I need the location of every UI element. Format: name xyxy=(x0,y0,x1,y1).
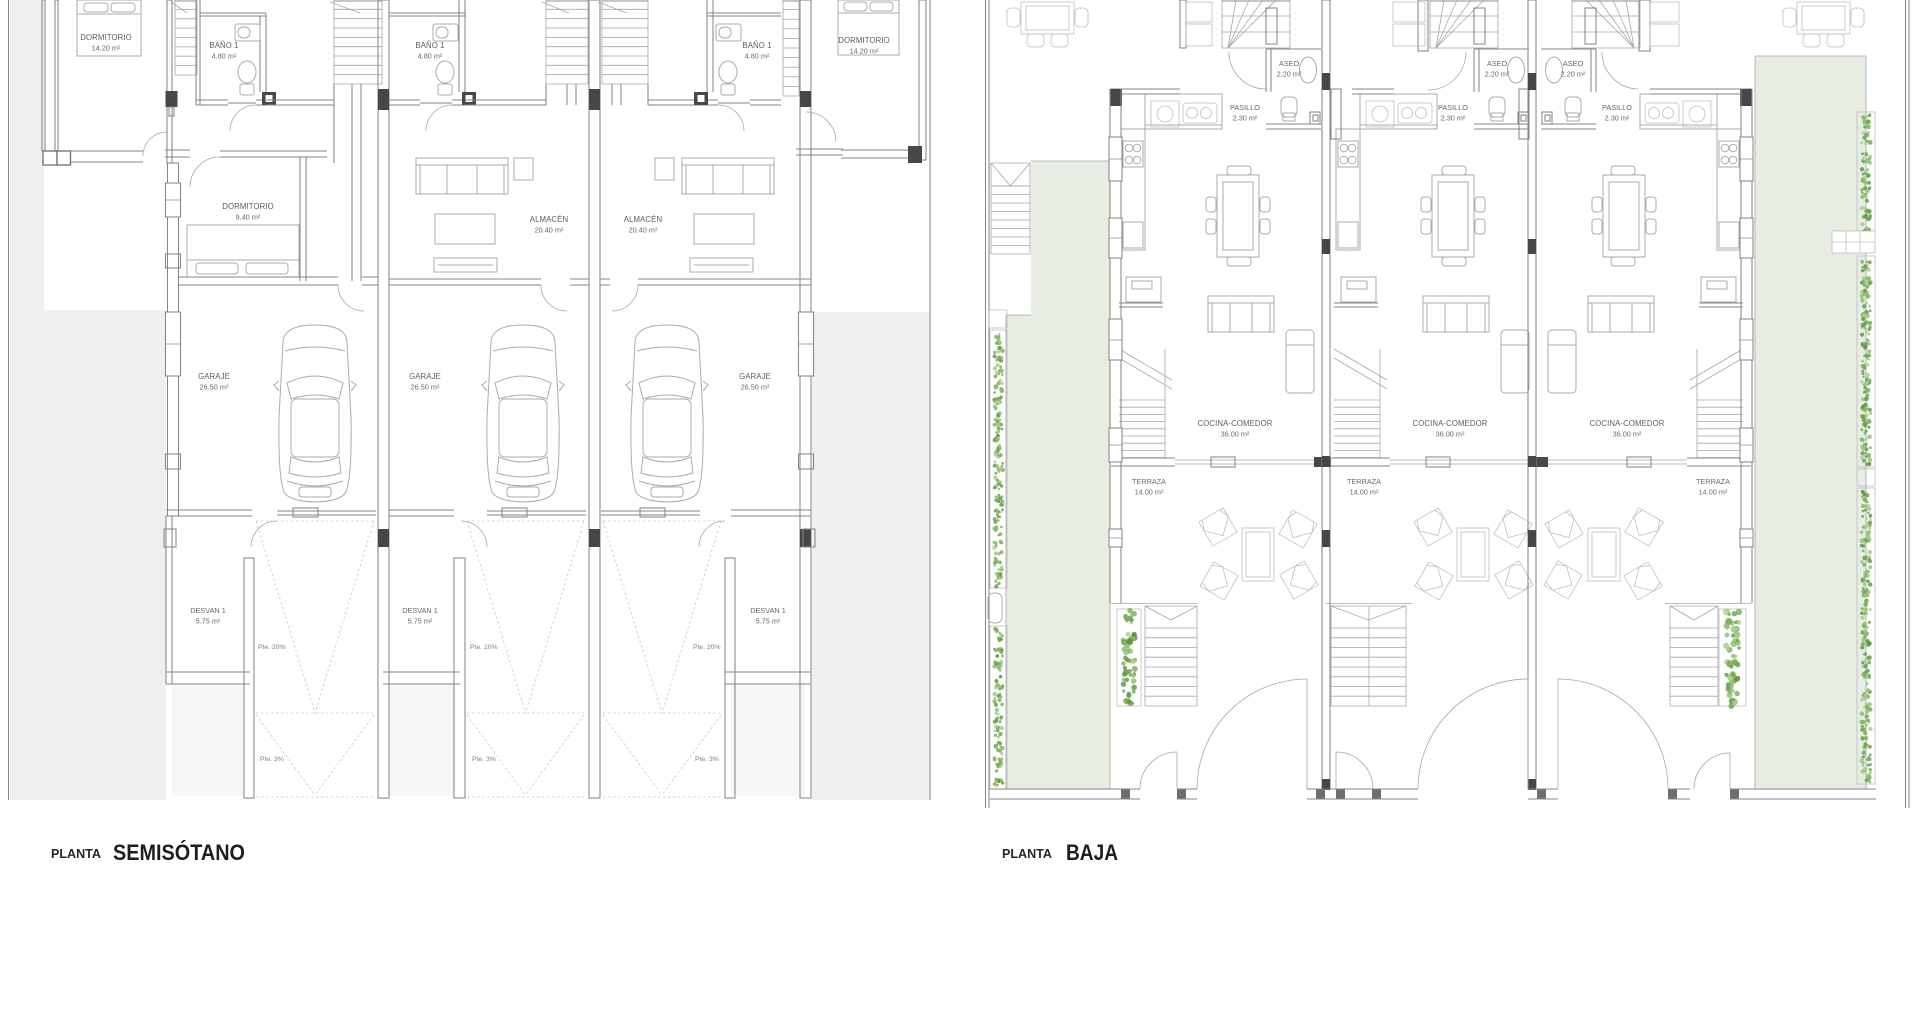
svg-text:GARAJE: GARAJE xyxy=(198,372,230,381)
svg-text:PASILLO: PASILLO xyxy=(1602,103,1632,112)
svg-text:2.30 m²: 2.30 m² xyxy=(1605,114,1630,123)
svg-text:TERRAZA: TERRAZA xyxy=(1696,477,1730,486)
svg-text:5.75 m²: 5.75 m² xyxy=(196,617,221,626)
svg-text:26.50 m²: 26.50 m² xyxy=(200,383,229,392)
svg-text:DESVAN 1: DESVAN 1 xyxy=(750,606,786,615)
svg-text:2.20 m²: 2.20 m² xyxy=(1561,70,1586,79)
svg-text:DORMITORIO: DORMITORIO xyxy=(80,33,132,42)
svg-text:SEMISÓTANO: SEMISÓTANO xyxy=(113,840,245,865)
svg-text:Pte. 3%: Pte. 3% xyxy=(260,756,284,763)
svg-text:5.75 m²: 5.75 m² xyxy=(408,617,433,626)
svg-text:COCINA-COMEDOR: COCINA-COMEDOR xyxy=(1197,419,1272,428)
svg-text:14.00 m²: 14.00 m² xyxy=(1350,488,1379,497)
svg-text:14.00 m²: 14.00 m² xyxy=(1699,488,1728,497)
svg-text:ASEO: ASEO xyxy=(1487,59,1508,68)
svg-text:TERRAZA: TERRAZA xyxy=(1347,477,1381,486)
svg-text:2.20 m²: 2.20 m² xyxy=(1277,70,1302,79)
svg-text:Pte. 20%: Pte. 20% xyxy=(693,644,721,651)
svg-text:36.00 m²: 36.00 m² xyxy=(1613,430,1642,439)
svg-text:PLANTA: PLANTA xyxy=(51,847,101,861)
svg-text:DORMITORIO: DORMITORIO xyxy=(222,202,274,211)
svg-text:DESVAN 1: DESVAN 1 xyxy=(190,606,226,615)
svg-text:2.30 m²: 2.30 m² xyxy=(1441,114,1466,123)
svg-text:BAÑO 1: BAÑO 1 xyxy=(209,41,238,50)
svg-text:36.00 m²: 36.00 m² xyxy=(1221,430,1250,439)
svg-text:4.80 m²: 4.80 m² xyxy=(212,52,237,61)
svg-text:36.00 m²: 36.00 m² xyxy=(1436,430,1465,439)
svg-text:5.75 m²: 5.75 m² xyxy=(756,617,781,626)
svg-text:14.00 m²: 14.00 m² xyxy=(1135,488,1164,497)
svg-text:20.40 m²: 20.40 m² xyxy=(629,226,658,235)
svg-text:DESVAN 1: DESVAN 1 xyxy=(402,606,438,615)
svg-text:2.30 m²: 2.30 m² xyxy=(1233,114,1258,123)
svg-text:PASILLO: PASILLO xyxy=(1230,103,1260,112)
svg-text:DORMITORIO: DORMITORIO xyxy=(838,36,890,45)
svg-text:Pte. 20%: Pte. 20% xyxy=(470,644,498,651)
svg-text:4.80 m²: 4.80 m² xyxy=(745,52,770,61)
svg-text:Pte. 3%: Pte. 3% xyxy=(472,756,496,763)
svg-text:PASILLO: PASILLO xyxy=(1438,103,1468,112)
svg-text:4.80 m²: 4.80 m² xyxy=(418,52,443,61)
svg-text:TERRAZA: TERRAZA xyxy=(1132,477,1166,486)
svg-text:BAÑO 1: BAÑO 1 xyxy=(742,41,771,50)
svg-text:GARAJE: GARAJE xyxy=(739,372,771,381)
svg-text:ALMACÉN: ALMACÉN xyxy=(624,215,662,224)
svg-text:2.20 m²: 2.20 m² xyxy=(1485,70,1510,79)
svg-text:14.20 m²: 14.20 m² xyxy=(92,44,121,53)
svg-text:26.50 m²: 26.50 m² xyxy=(741,383,770,392)
svg-text:COCINA-COMEDOR: COCINA-COMEDOR xyxy=(1589,419,1664,428)
svg-text:14.20 m²: 14.20 m² xyxy=(850,47,879,56)
svg-text:Pte. 3%: Pte. 3% xyxy=(695,756,719,763)
svg-text:ASEO: ASEO xyxy=(1279,59,1300,68)
svg-text:ALMACÉN: ALMACÉN xyxy=(530,215,568,224)
svg-text:20.40 m²: 20.40 m² xyxy=(535,226,564,235)
svg-text:BAJA: BAJA xyxy=(1066,840,1118,865)
svg-text:PLANTA: PLANTA xyxy=(1002,847,1052,861)
svg-text:GARAJE: GARAJE xyxy=(409,372,441,381)
svg-text:26.50 m²: 26.50 m² xyxy=(411,383,440,392)
svg-text:9.40 m²: 9.40 m² xyxy=(236,213,261,222)
svg-text:BAÑO 1: BAÑO 1 xyxy=(415,41,444,50)
svg-text:COCINA-COMEDOR: COCINA-COMEDOR xyxy=(1412,419,1487,428)
svg-text:ASEO: ASEO xyxy=(1563,59,1584,68)
svg-text:Pte. 20%: Pte. 20% xyxy=(258,644,286,651)
